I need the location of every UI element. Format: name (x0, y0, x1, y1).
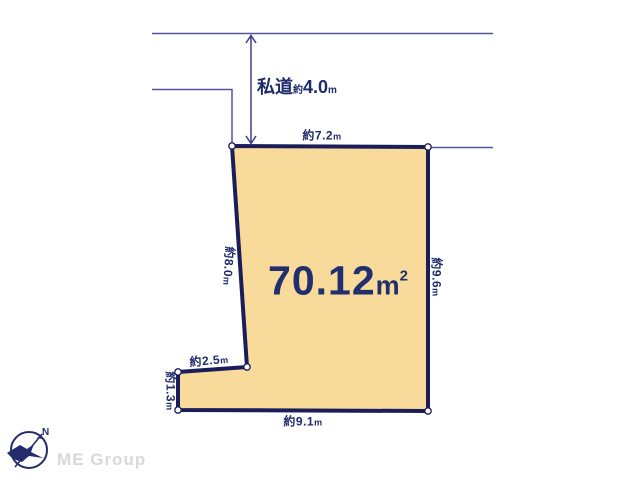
brand-logo-text: ME Group (57, 450, 146, 470)
dim-step-side-label: 約1.3m (163, 371, 180, 410)
road-value: 4.0 (303, 77, 328, 97)
road-approx: 約 (293, 85, 303, 96)
dim-left-label: 約8.0m (219, 246, 239, 286)
lot-diagram-page: 私道約4.0m 約7.2m 約9.6m 約8.0m 約9.1m 約2.5m 約1… (0, 0, 640, 480)
parcel-vertex-dot (425, 144, 431, 150)
road-unit: m (328, 85, 337, 96)
compass-north-label: N (42, 427, 49, 438)
road-width-label: 私道約4.0m (257, 73, 337, 99)
dim-top-label: 約7.2m (302, 127, 341, 144)
parcel-vertex-dot (229, 143, 235, 149)
area-superscript: 2 (400, 268, 408, 285)
parcel-vertex-dot (425, 408, 431, 414)
dim-right-label: 約9.6m (429, 257, 446, 296)
dim-bottom-label: 約9.1m (283, 413, 322, 430)
area-label: 70.12m2 (268, 258, 408, 305)
compass-icon: N (6, 425, 58, 477)
road-width-arrow (246, 36, 256, 144)
area-value: 70.12 (268, 258, 376, 304)
parcel-vertex-dot (244, 364, 250, 370)
dim-step-label: 約2.5m (189, 350, 230, 370)
area-unit: m (376, 271, 400, 301)
neighbor-boundary-step-line (152, 90, 232, 147)
road-name: 私道 (257, 77, 293, 97)
lot-diagram (0, 0, 640, 480)
compass-bird-shape (7, 444, 43, 462)
